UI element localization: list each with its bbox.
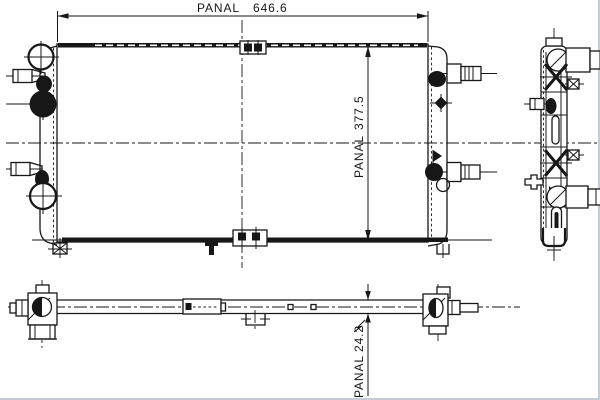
left-tank <box>6 41 72 258</box>
dimension-width-value: 646.6 <box>253 1 288 15</box>
side-top-cap <box>546 38 562 46</box>
arrow-left <box>58 13 69 19</box>
side-view <box>524 38 600 257</box>
side-foot <box>543 228 565 257</box>
side-slot-upper <box>552 116 559 144</box>
dimension-width-label: PANAL <box>197 1 240 15</box>
radiator-technical-drawing: PANAL 646.6 PANAL 377.5 PANAL 24.2 <box>0 0 600 400</box>
side-pipe-top <box>547 48 600 72</box>
centerlines <box>6 20 600 307</box>
arrow-down-to-edge <box>365 291 371 300</box>
side-pipe-lower <box>547 186 600 208</box>
drawing-svg: PANAL 646.6 PANAL 377.5 PANAL 24.2 <box>0 0 600 400</box>
dimension-thickness: PANAL 24.2 <box>352 284 371 398</box>
dimension-width: PANAL 646.6 <box>58 1 429 42</box>
dimension-height-value: 377.5 <box>352 95 366 130</box>
dimension-height: PANAL 377.5 <box>352 46 371 241</box>
bottom-left-assembly <box>10 280 57 348</box>
dimension-thickness-label: PANAL <box>352 355 366 398</box>
side-clip-lower <box>565 150 584 160</box>
bottom-right-assembly <box>423 284 478 342</box>
small-fitting-right <box>430 94 452 112</box>
outlet-pipe-mid-right <box>425 150 497 192</box>
side-clip-upper <box>565 79 584 89</box>
right-tank <box>425 46 497 258</box>
drain-tab <box>205 242 218 255</box>
bottom-view <box>10 280 478 348</box>
outlet-pipe-upper-right <box>428 64 497 87</box>
bottom-mount-bracket <box>233 227 267 249</box>
arrow-up-to-edge <box>365 314 371 323</box>
dimension-thickness-value: 24.2 <box>352 325 366 352</box>
connector-dark-upper <box>6 88 57 120</box>
arrow-up <box>365 46 371 57</box>
top-mount-bracket <box>240 40 266 55</box>
front-view <box>6 40 497 258</box>
dimension-height-label: PANAL <box>352 135 366 178</box>
hose-fitting-upper-left <box>6 70 52 93</box>
arrow-right <box>417 13 428 19</box>
bottom-tick-1 <box>288 305 293 310</box>
side-plus-fitting <box>525 175 543 189</box>
right-foot-bracket <box>437 244 449 258</box>
bottom-detail-plate <box>183 299 226 314</box>
side-bracket-left-upper <box>524 98 557 114</box>
bottom-tick-2 <box>311 305 316 310</box>
